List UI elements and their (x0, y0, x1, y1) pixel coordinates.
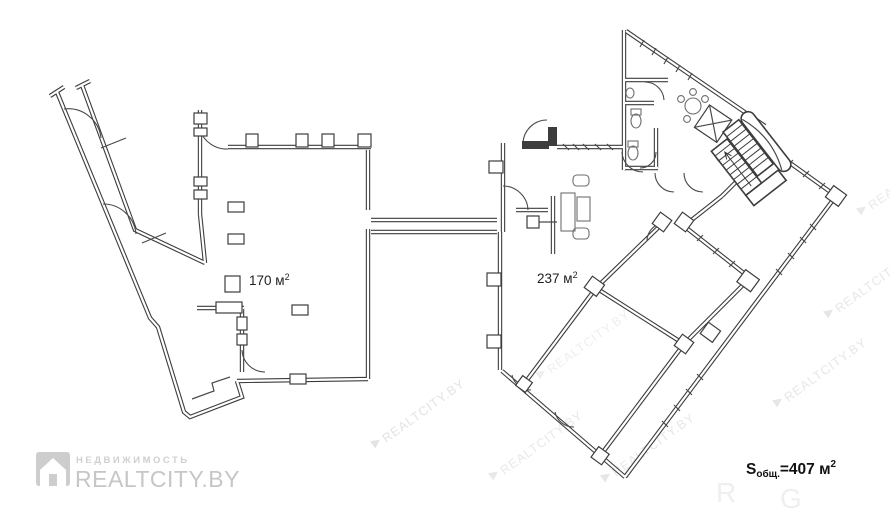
watermark-text: REALTCITY.BY (866, 143, 890, 212)
area-sup: 2 (573, 270, 578, 280)
total-sup: 2 (831, 459, 837, 470)
watermark-text: REALTCITY.BY (610, 410, 698, 479)
watermark: REALTCITY.BY (370, 376, 468, 452)
area-label-right: 237 м2 (537, 270, 578, 286)
duct-box (225, 276, 240, 292)
wall-infill (50, 30, 836, 477)
pillar (246, 134, 258, 147)
chair (684, 116, 691, 123)
flag-icon (488, 468, 501, 481)
chair (678, 96, 685, 103)
door-jamb (548, 127, 557, 146)
chair (573, 175, 589, 186)
column (228, 234, 244, 244)
shelf (194, 190, 207, 199)
chair (690, 89, 697, 96)
watermark-ghost: R (716, 477, 736, 508)
watermark: REALTCITY.BY (823, 246, 890, 322)
column (292, 305, 308, 315)
table (577, 197, 590, 221)
area-value: 237 м (537, 271, 573, 286)
watermark: REALTCITY.BY (772, 335, 870, 411)
pillar (487, 273, 501, 286)
watermark-text: REALTCITY.BY (498, 408, 586, 477)
flag-icon (856, 203, 869, 216)
shelf (237, 317, 247, 330)
shelf (194, 177, 207, 186)
watermark-text: REALTCITY.BY (833, 246, 890, 315)
pillar (290, 374, 306, 384)
watermark: REALTCITY.BY (856, 143, 890, 219)
floor-plan: REALTCITY.BY REALTCITY.BY REALTCITY.BY R… (0, 0, 890, 520)
watermark-layer: REALTCITY.BY REALTCITY.BY REALTCITY.BY R… (370, 143, 890, 514)
flag-icon (823, 306, 836, 319)
watermark-ghost: G (780, 483, 802, 514)
toilet-icon (628, 146, 638, 160)
logo-brand: REALTCITY.BY (75, 466, 240, 492)
floor-plan-canvas: REALTCITY.BY REALTCITY.BY REALTCITY.BY R… (0, 0, 890, 520)
pillar (296, 134, 308, 147)
pillar (489, 161, 503, 173)
watermark-text: REALTCITY.BY (782, 335, 870, 404)
shelf (216, 302, 242, 313)
watermark-text: REALTCITY.BY (380, 376, 468, 445)
pillar (527, 216, 539, 228)
shelf (194, 113, 207, 124)
pillar (358, 134, 371, 147)
door-jamb (522, 141, 549, 149)
watermark: REALTCITY.BY (488, 408, 586, 484)
sink-icon (626, 88, 634, 98)
flag-icon (772, 395, 785, 408)
flag-icon (600, 470, 613, 483)
flag-icon (370, 436, 383, 449)
total-mid: =407 м (780, 461, 831, 478)
logo: НЕДВИЖИМОСТЬ REALTCITY.BY (36, 452, 240, 492)
total-area-label: Sобщ.=407 м2 (746, 459, 837, 480)
house-door (49, 474, 57, 486)
round-table (685, 98, 701, 114)
table (561, 193, 575, 231)
area-sup: 2 (285, 272, 290, 282)
toilet-icon (631, 114, 641, 128)
column (228, 202, 244, 212)
shelf (237, 334, 247, 345)
pillar (322, 134, 334, 147)
area-value: 170 м (249, 273, 285, 288)
chair (702, 96, 709, 103)
watermark: REALTCITY.BY (535, 307, 633, 383)
walls (50, 30, 836, 477)
total-s: S (746, 461, 756, 478)
pillar (487, 335, 501, 348)
logo-tagline: НЕДВИЖИМОСТЬ (76, 455, 190, 466)
total-sub: общ. (756, 468, 780, 480)
shelf (194, 128, 207, 136)
area-label-left: 170 м2 (249, 272, 290, 288)
